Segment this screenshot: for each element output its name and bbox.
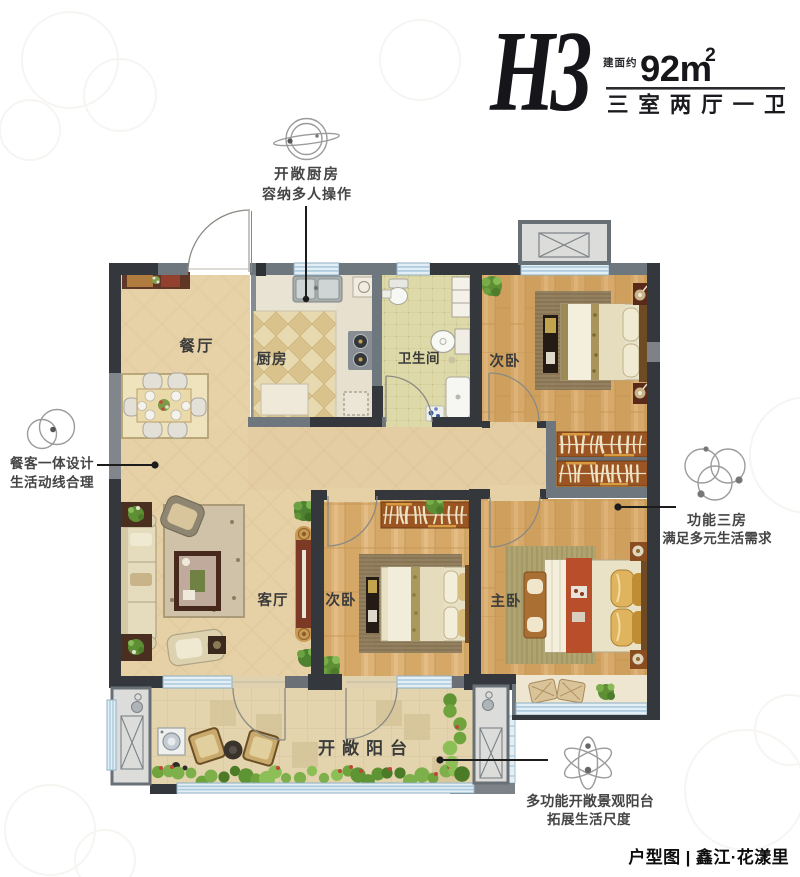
- svg-text:餐厅: 餐厅: [178, 336, 214, 355]
- svg-text:厨房: 厨房: [257, 350, 288, 368]
- svg-text:H3: H3: [489, 7, 590, 136]
- svg-text:容纳多人操作: 容纳多人操作: [261, 186, 352, 202]
- svg-text:卫生间: 卫生间: [398, 350, 440, 366]
- svg-text:餐客一体设计: 餐客一体设计: [9, 455, 94, 471]
- svg-text:生活动线合理: 生活动线合理: [10, 474, 94, 490]
- svg-text:功能三房: 功能三房: [687, 512, 747, 528]
- svg-text:满足多元生活需求: 满足多元生活需求: [662, 530, 772, 546]
- svg-text:多功能开敞景观阳台: 多功能开敞景观阳台: [526, 793, 654, 809]
- svg-text:92m: 92m: [640, 48, 712, 89]
- svg-text:三室两厅一卫: 三室两厅一卫: [607, 92, 795, 117]
- svg-text:建面约: 建面约: [602, 56, 638, 69]
- svg-text:户型图 | 鑫江·花漾里: 户型图 | 鑫江·花漾里: [628, 847, 789, 867]
- svg-text:2: 2: [705, 44, 716, 66]
- svg-text:主卧: 主卧: [491, 592, 522, 610]
- svg-text:开敞厨房: 开敞厨房: [274, 165, 340, 183]
- svg-text:客厅: 客厅: [257, 591, 289, 609]
- svg-text:次卧: 次卧: [490, 352, 521, 370]
- svg-text:开敞阳台: 开敞阳台: [318, 738, 414, 758]
- svg-text:拓展生活尺度: 拓展生活尺度: [547, 811, 631, 827]
- svg-text:次卧: 次卧: [326, 591, 357, 609]
